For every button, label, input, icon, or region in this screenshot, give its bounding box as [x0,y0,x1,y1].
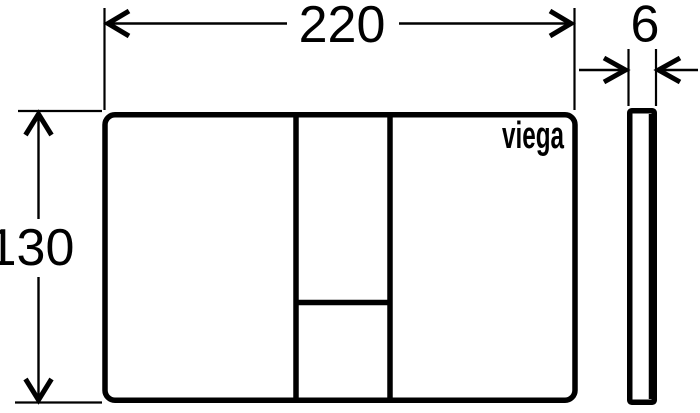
plate-outline [105,115,575,401]
width-dimension-label: 220 [299,0,386,54]
height-dimension-label: 130 [0,219,74,277]
height-dimension: 130 [0,111,102,403]
thickness-dimension-label: 6 [631,0,660,54]
technical-drawing-svg: viega 220 130 [0,0,700,413]
thickness-dimension: 6 [579,0,698,106]
side-view [630,111,655,403]
drawing-canvas: viega 220 130 [0,0,700,413]
viega-logo: viega [502,115,565,157]
front-view: viega [105,113,575,401]
width-dimension: 220 [105,0,575,110]
